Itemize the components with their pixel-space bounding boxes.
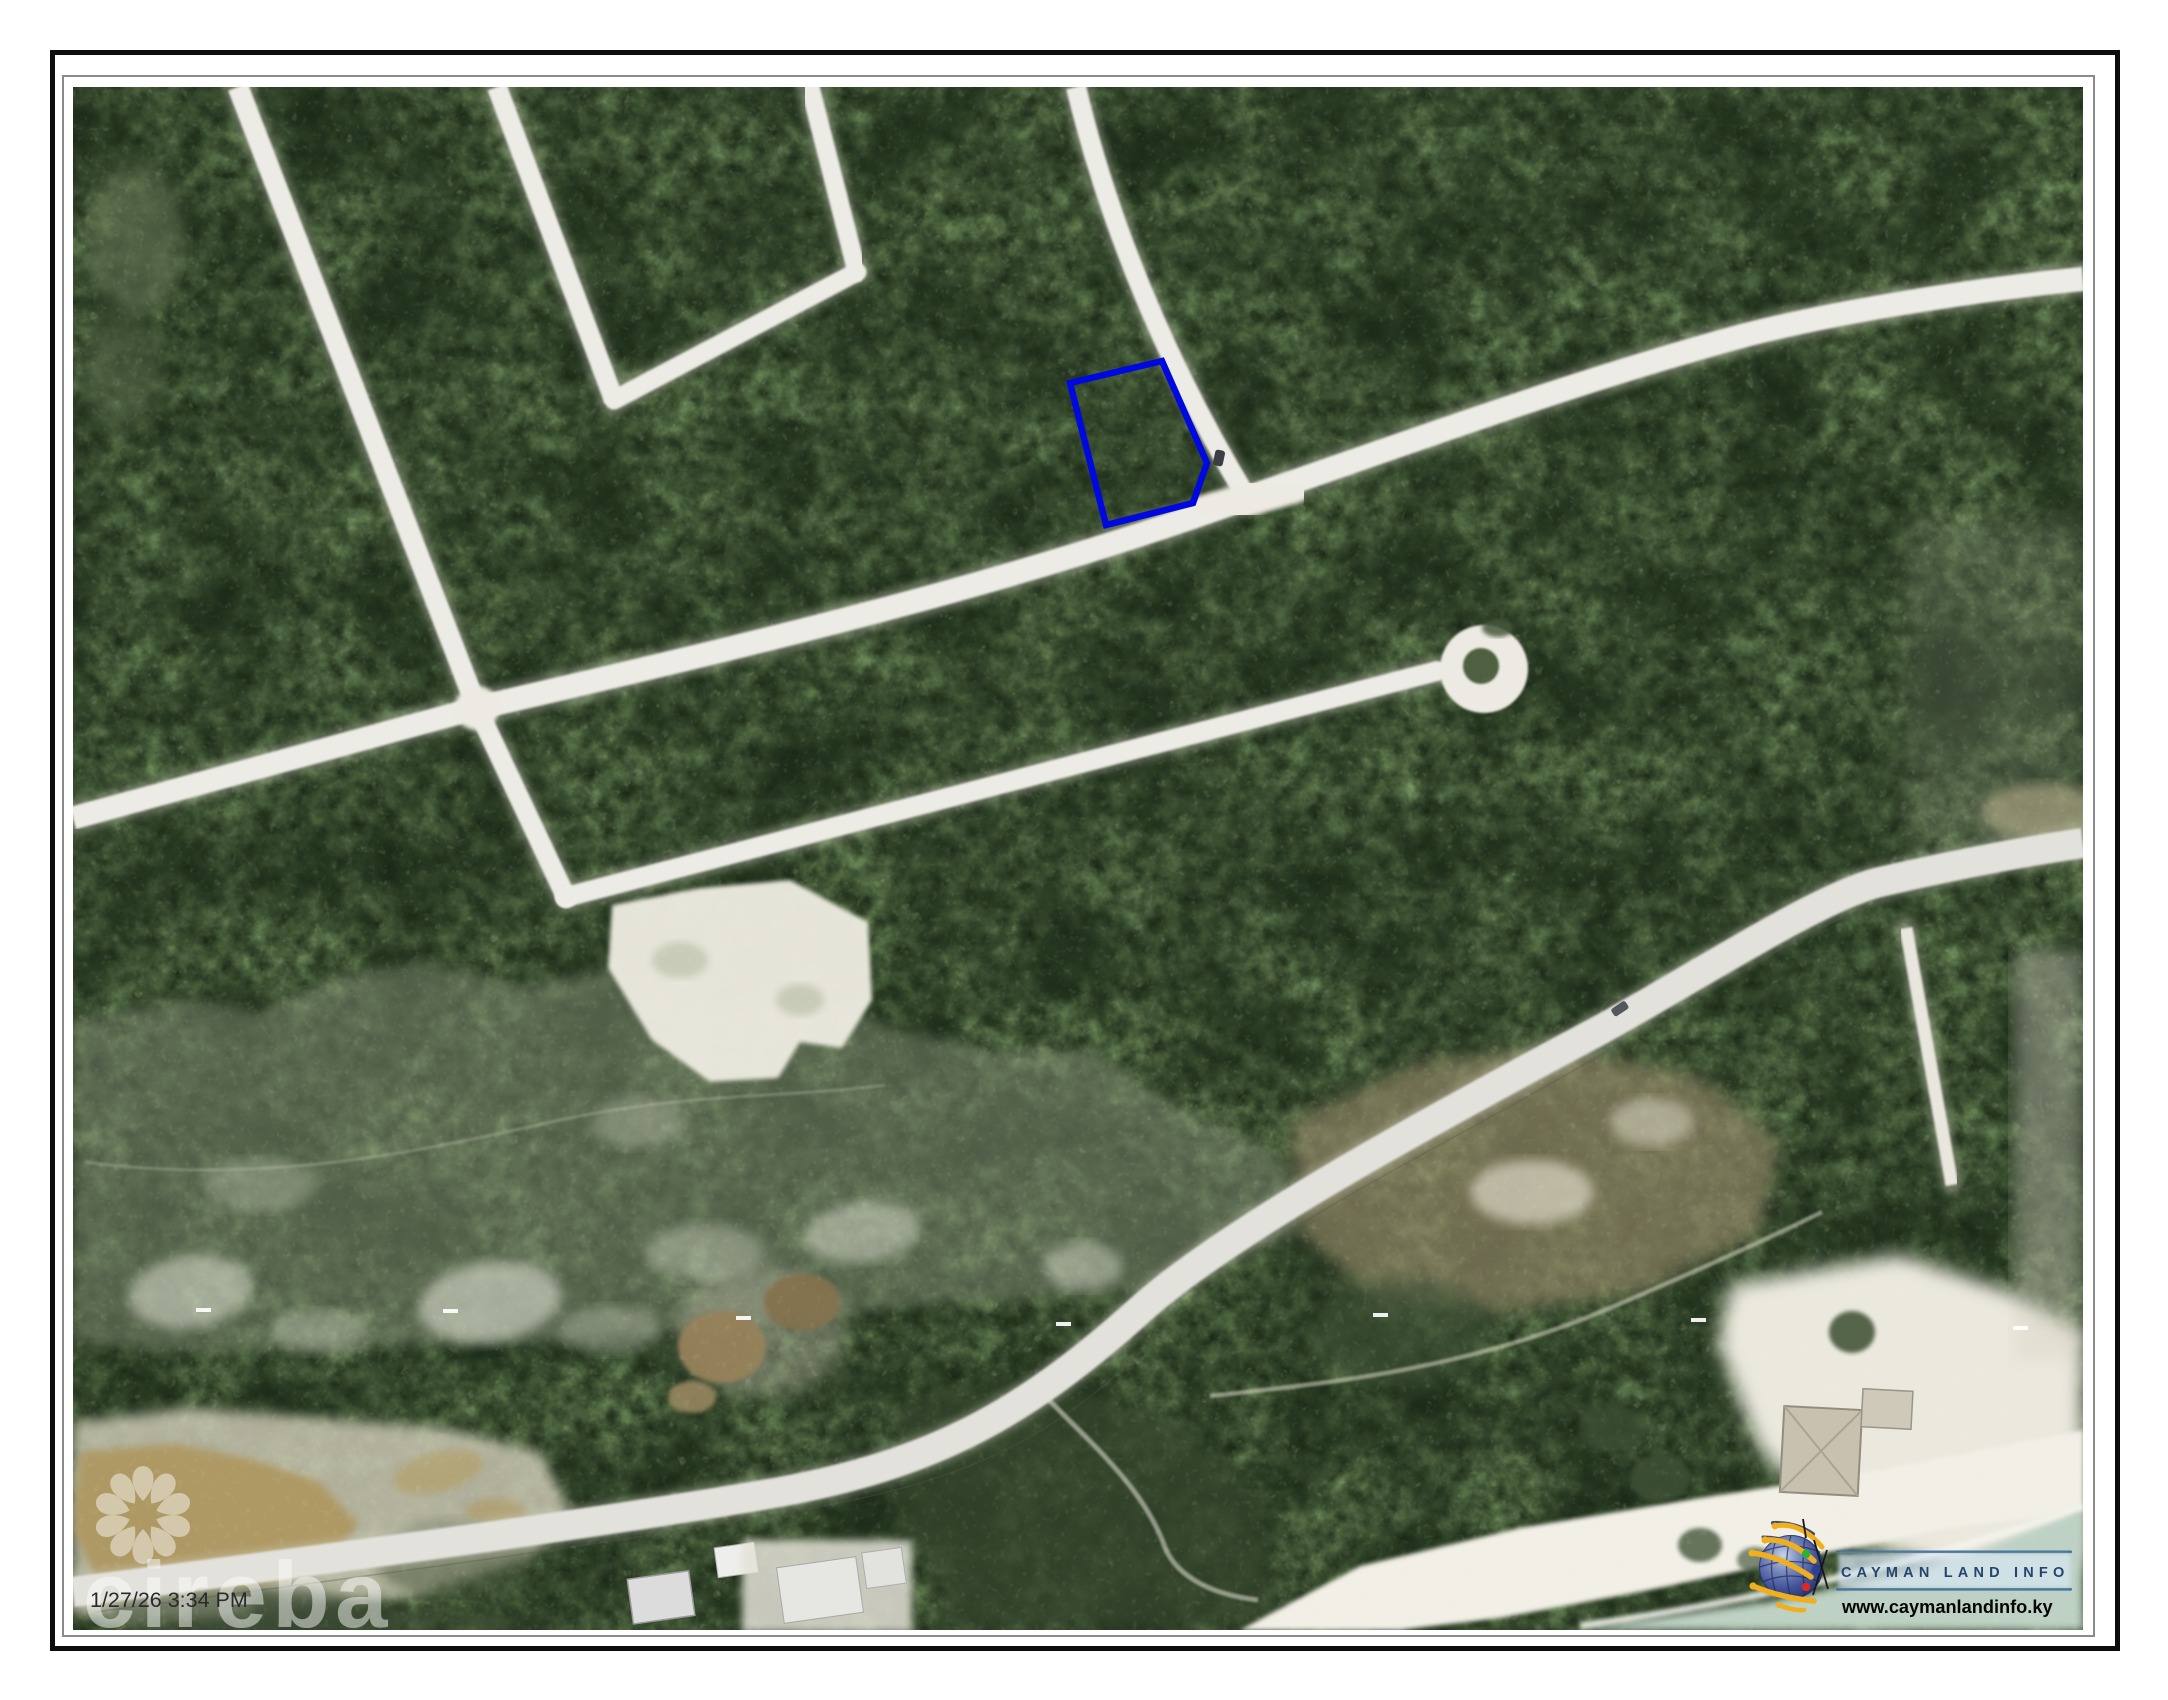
svg-text:cireba: cireba: [83, 1542, 393, 1630]
svg-text:CAYMAN LAND INFO: CAYMAN LAND INFO: [1841, 1565, 2069, 1581]
svg-text:1/27/26 3:34 PM: 1/27/26 3:34 PM: [90, 1588, 248, 1612]
svg-text:www.caymanlandinfo.ky: www.caymanlandinfo.ky: [1841, 1597, 2053, 1617]
